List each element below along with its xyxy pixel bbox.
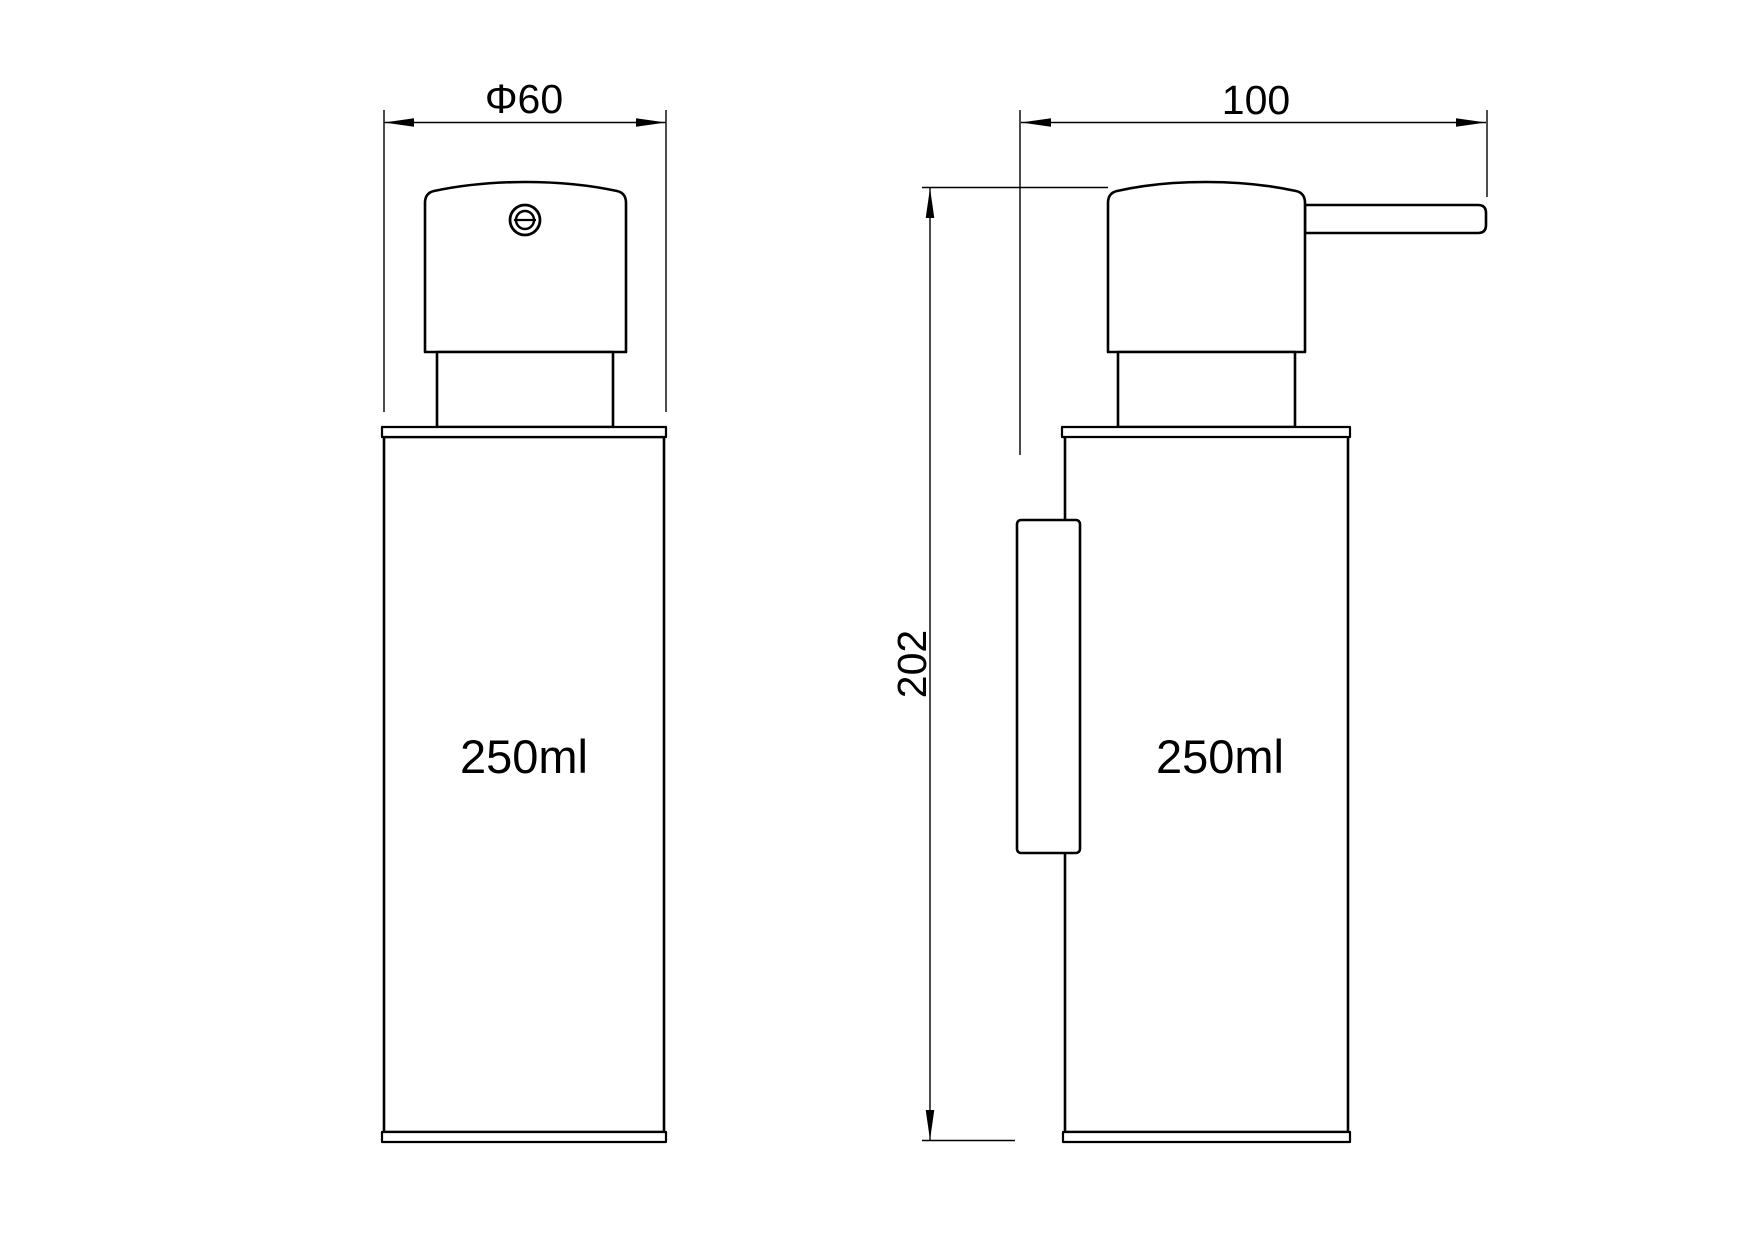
bottle-body [384, 437, 664, 1132]
height-value: 202 [889, 630, 935, 698]
bottle-top-rim [1062, 427, 1350, 437]
diameter-value: Φ60 [485, 76, 563, 122]
pump-collar [1118, 352, 1295, 427]
technical-drawing-sheet: Φ60 250ml 100 [0, 0, 1754, 1241]
arrowhead-right [1456, 118, 1486, 127]
arrowhead-left [1021, 118, 1051, 127]
pump-head [425, 182, 626, 352]
capacity-label: 250ml [1156, 730, 1284, 783]
capacity-label: 250ml [460, 730, 588, 783]
pump-head [1108, 182, 1305, 352]
bottle-top-rim [382, 427, 666, 437]
arrowhead-top [926, 188, 935, 218]
pump-nozzle [1305, 205, 1486, 233]
arrowhead-bottom [926, 1110, 935, 1140]
side-view: 100 202 250ml [889, 77, 1487, 1142]
bottle-body [1065, 437, 1348, 1132]
pump-collar [437, 352, 613, 427]
bottle-base-rim [382, 1132, 666, 1142]
front-view: Φ60 250ml [382, 76, 666, 1142]
arrowhead-right [636, 118, 666, 127]
depth-value: 100 [1222, 77, 1290, 123]
dispenser-dimension-drawing: Φ60 250ml 100 [0, 0, 1754, 1241]
bottle-base-rim [1063, 1132, 1350, 1142]
arrowhead-left [384, 118, 414, 127]
wall-bracket [1017, 520, 1080, 853]
